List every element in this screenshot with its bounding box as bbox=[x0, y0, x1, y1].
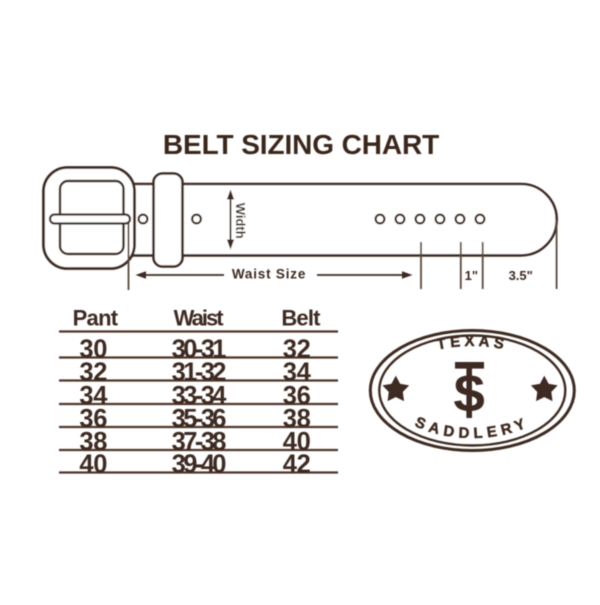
svg-text:42: 42 bbox=[283, 450, 311, 478]
svg-text:39-40: 39-40 bbox=[172, 450, 227, 478]
svg-text:Pant: Pant bbox=[73, 305, 119, 330]
svg-text:Width: Width bbox=[233, 203, 248, 239]
svg-text:BELT SIZING CHART: BELT SIZING CHART bbox=[163, 129, 439, 160]
svg-text:1": 1" bbox=[465, 268, 478, 283]
svg-text:3.5": 3.5" bbox=[509, 268, 533, 283]
svg-text:Belt: Belt bbox=[281, 305, 321, 330]
svg-text:S: S bbox=[453, 366, 486, 422]
svg-text:Waist Size: Waist Size bbox=[232, 266, 306, 281]
svg-text:Waist: Waist bbox=[174, 305, 225, 330]
svg-text:40: 40 bbox=[79, 450, 107, 478]
